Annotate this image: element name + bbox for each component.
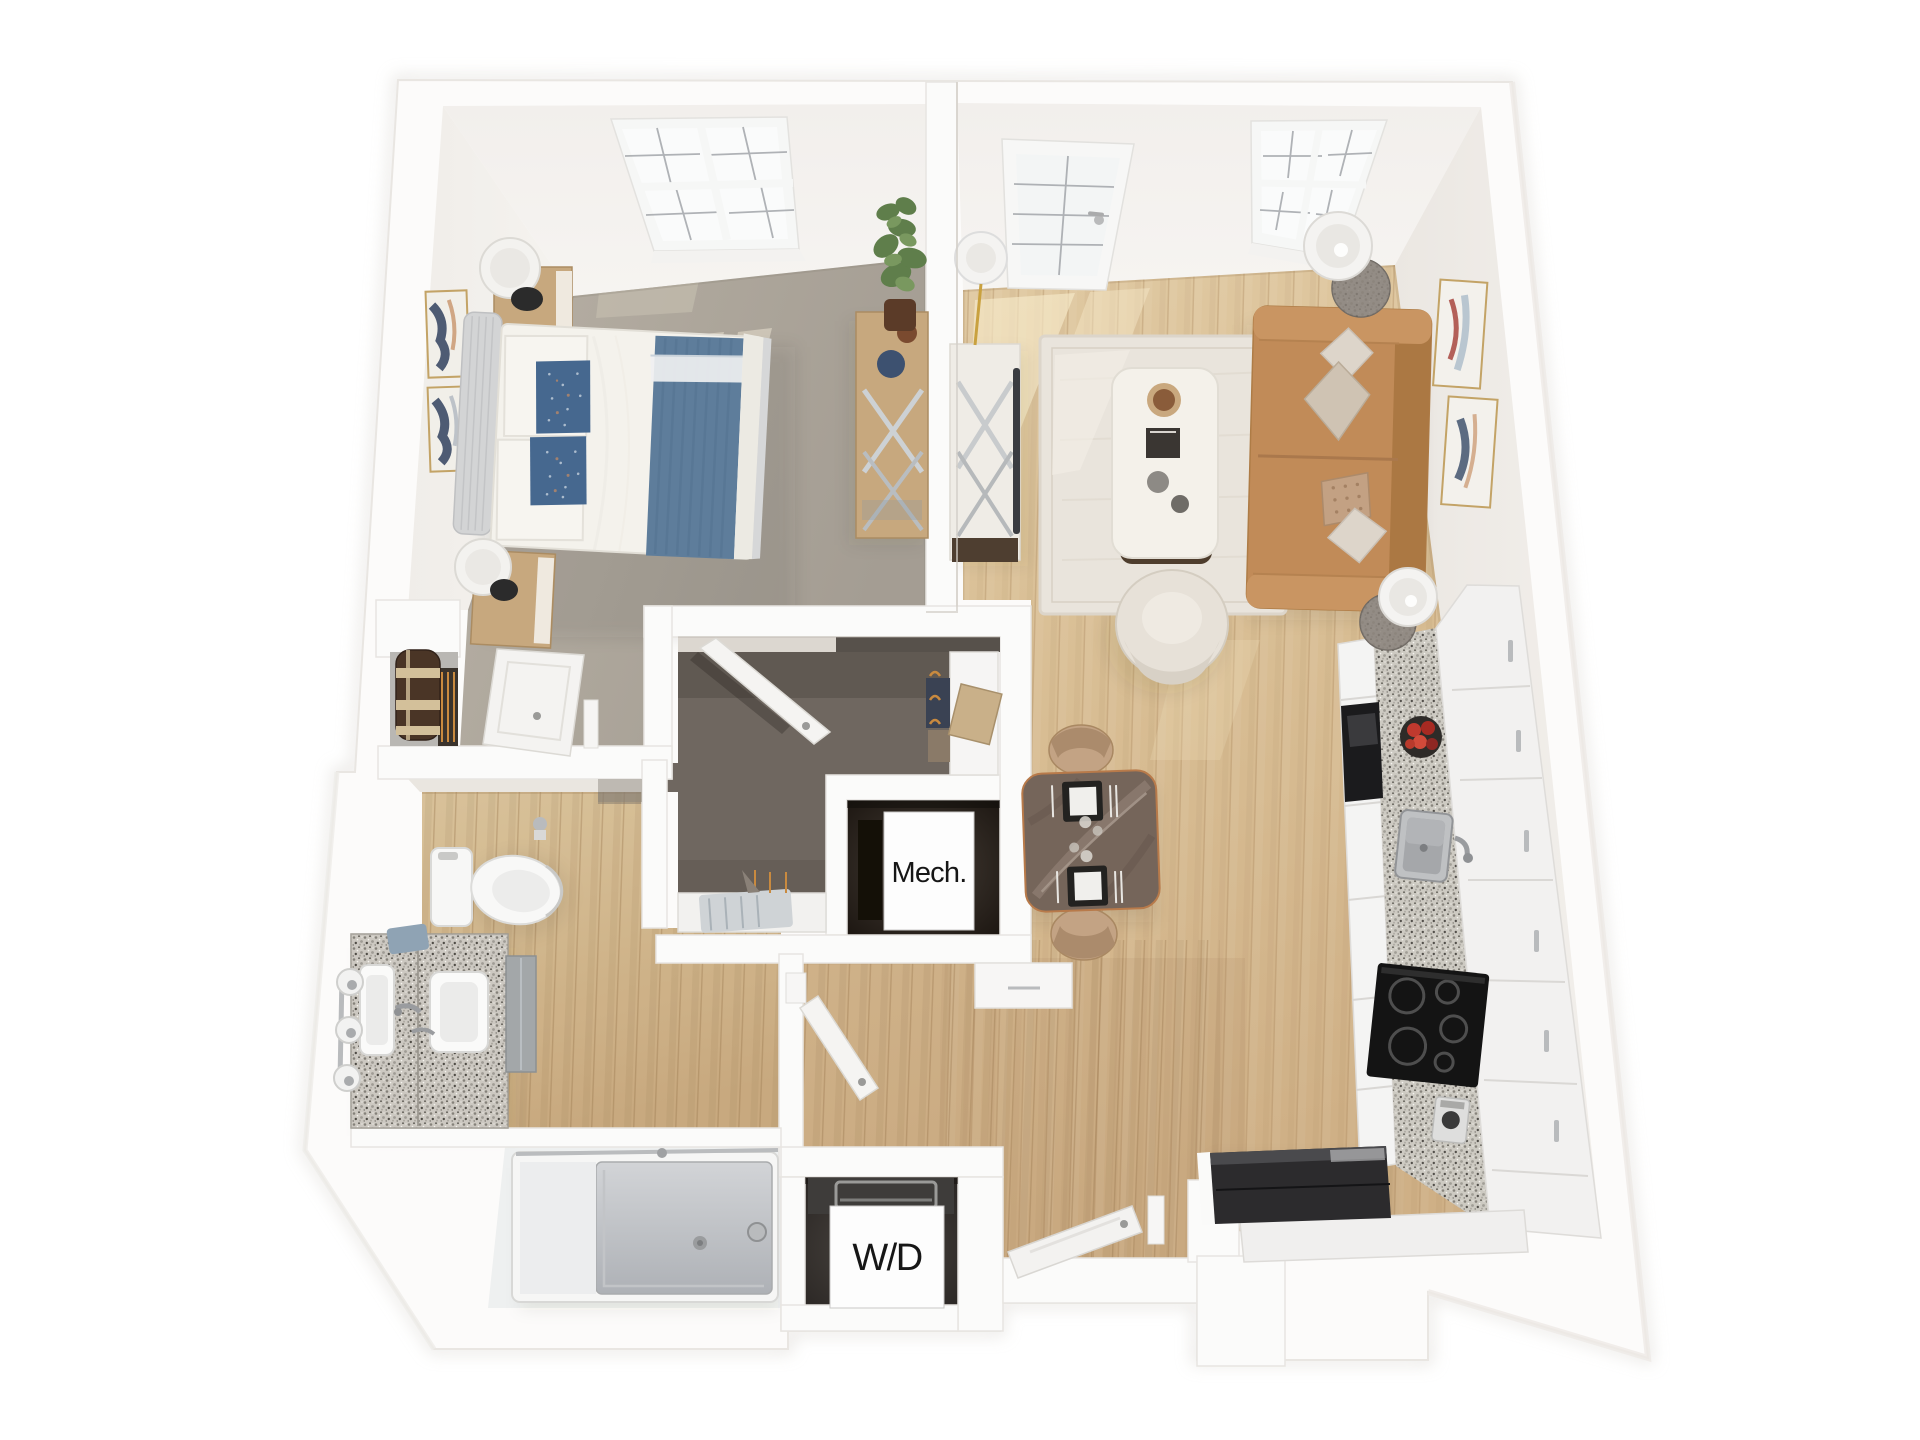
- svg-text:Mech.: Mech.: [892, 857, 967, 889]
- svg-text:W/D: W/D: [852, 1237, 921, 1279]
